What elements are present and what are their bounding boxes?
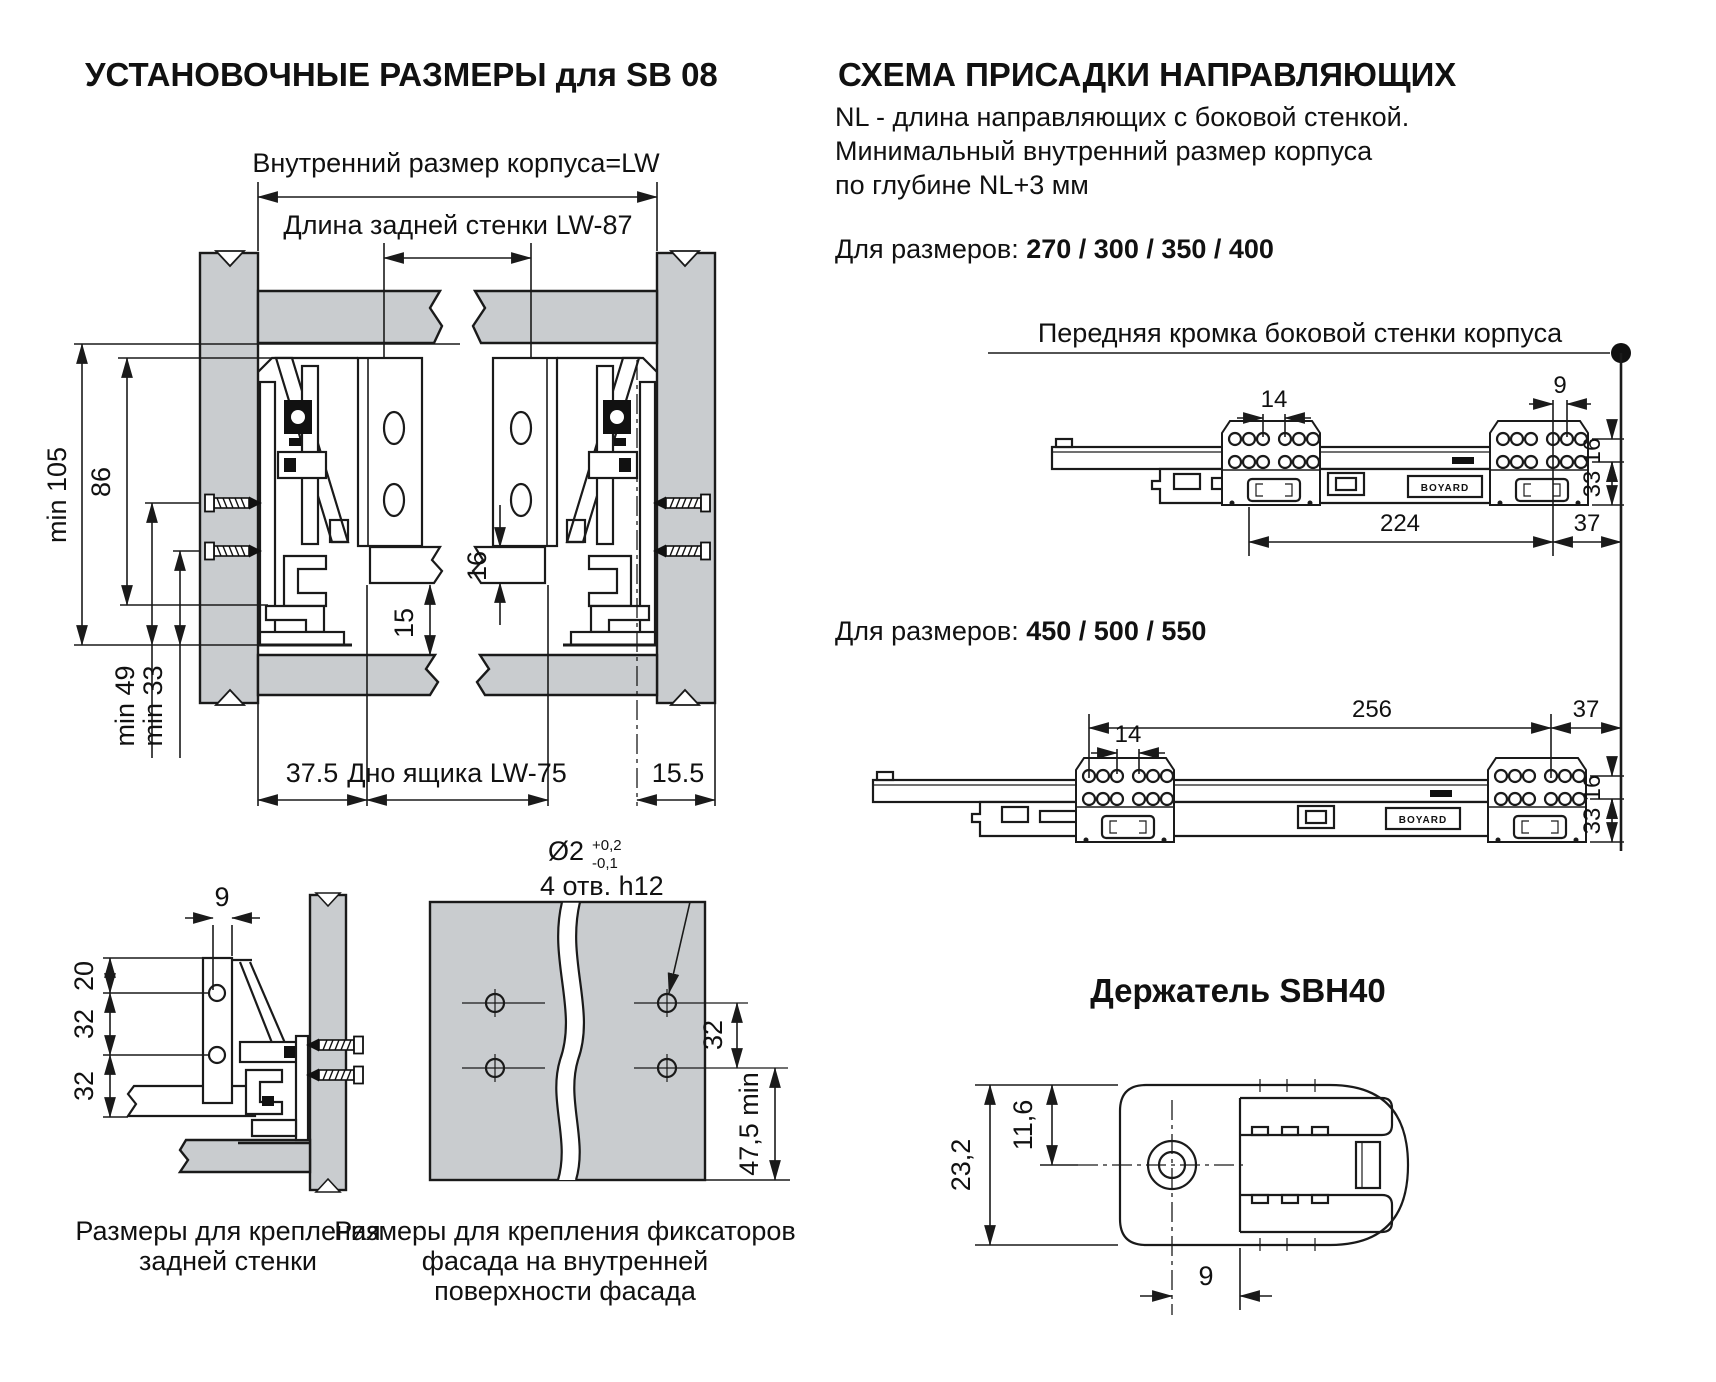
holder-sbh40-diagram: Держатель SBH40 [946, 972, 1408, 1315]
dim-drawer-bottom-label: Дно ящика LW-75 [347, 758, 567, 788]
rail2-dim-256-label: 256 [1352, 696, 1392, 723]
rail1-brand-logo: BOYARD [1421, 483, 1469, 494]
rail2-dim-33-label: 33 [1579, 808, 1606, 835]
rail1-dim-224-label: 224 [1380, 510, 1420, 537]
rail2-right-block [1488, 758, 1586, 843]
rail-drilling-scheme-section: СХЕМА ПРИСАДКИ НАПРАВЛЯЮЩИХ NL - длина н… [835, 56, 1631, 1315]
sizes2-line: Для размеров: 450 / 500 / 550 [835, 616, 1206, 646]
rail1-right-block [1490, 421, 1588, 506]
rail1-dim-9-label: 9 [1553, 372, 1566, 399]
dim-back-wall-length-label: Длина задней стенки LW-87 [283, 210, 632, 240]
rear-dim-9-label: 9 [214, 882, 229, 912]
rail2-brand-logo: BOYARD [1399, 815, 1447, 826]
dim-16-label: 16 [462, 551, 492, 581]
facade-dim-32-label: 32 [698, 1020, 728, 1050]
dim-inner-width-label: Внутренний размер корпуса=LW [252, 148, 660, 178]
left-title: УСТАНОВОЧНЫЕ РАЗМЕРЫ для SB 08 [85, 56, 718, 93]
rail1-left-block [1222, 421, 1320, 506]
rail2-left-block [1076, 758, 1174, 843]
rail-diagram-450-550: BOYARD 256 37 14 16 33 [873, 696, 1624, 843]
dim-min105-label: min 105 [42, 447, 72, 543]
right-title: СХЕМА ПРИСАДКИ НАПРАВЛЯЮЩИХ [838, 56, 1456, 93]
note-line3: по глубине NL+3 мм [835, 170, 1089, 200]
rail1-dim-16-label: 16 [1579, 438, 1606, 465]
rear-dim-32b-label: 32 [69, 1071, 99, 1101]
facade-caption-line3: поверхности фасада [434, 1276, 697, 1306]
dim-15-5-label: 15.5 [652, 758, 705, 788]
installation-dimensions-section: УСТАНОВОЧНЫЕ РАЗМЕРЫ для SB 08 Внутренни… [42, 56, 796, 1306]
rail1-dim-14-label: 14 [1261, 386, 1288, 413]
facade-callout-holes: 4 отв. h12 [540, 871, 664, 901]
holder-dim-11-6-label: 11,6 [1008, 1100, 1038, 1151]
rear-dim-20-label: 20 [69, 961, 99, 991]
note-line1: NL - длина направляющих с боковой стенко… [835, 102, 1409, 132]
rail2-dim-16-label: 16 [1579, 775, 1606, 802]
holder-title: Держатель SBH40 [1090, 972, 1385, 1009]
rail1-dim-33-label: 33 [1579, 471, 1606, 498]
dim-min49-label: min 49 [110, 665, 140, 746]
facade-caption-line1: Размеры для крепления фиксаторов [334, 1216, 795, 1246]
sizes1-line: Для размеров: 270 / 300 / 350 / 400 [835, 234, 1274, 264]
facade-callout-diameter: Ø2 [548, 836, 584, 866]
rail1-dim-37-label: 37 [1574, 510, 1601, 537]
front-edge-label: Передняя кромка боковой стенки корпуса [1038, 318, 1563, 348]
rail-diagram-270-400: BOYARD 14 9 16 33 [1052, 372, 1624, 556]
rail2-dim-14-label: 14 [1115, 721, 1142, 748]
note-line2: Минимальный внутренний размер корпуса [835, 136, 1373, 166]
dim-37-5-label: 37.5 [286, 758, 339, 788]
facade-dim-47-5-label: 47,5 min [734, 1072, 764, 1176]
holder-dim-9-label: 9 [1198, 1261, 1213, 1291]
rear-caption-line2: задней стенки [139, 1246, 317, 1276]
dim-86-label: 86 [86, 467, 116, 497]
main-cross-section-diagram: Внутренний размер корпуса=LW Длина задне… [42, 148, 715, 806]
facade-callout-tol-minus: -0,1 [592, 855, 618, 872]
holder-dim-23-2-label: 23,2 [946, 1139, 976, 1192]
facade-caption-line2: фасада на внутренней [422, 1246, 709, 1276]
rail2-dim-37-label: 37 [1573, 696, 1600, 723]
dim-15-label: 15 [389, 608, 419, 638]
facade-fixing-diagram: Ø2 +0,2 -0,1 4 отв. h12 32 47,5 min Разм… [334, 836, 795, 1306]
technical-drawing-page: УСТАНОВОЧНЫЕ РАЗМЕРЫ для SB 08 Внутренни… [0, 0, 1716, 1382]
rear-dim-32a-label: 32 [69, 1009, 99, 1039]
facade-callout-tol-plus: +0,2 [592, 837, 622, 854]
drawing-canvas: УСТАНОВОЧНЫЕ РАЗМЕРЫ для SB 08 Внутренни… [0, 0, 1716, 1382]
dim-min33-label: min 33 [138, 665, 168, 746]
